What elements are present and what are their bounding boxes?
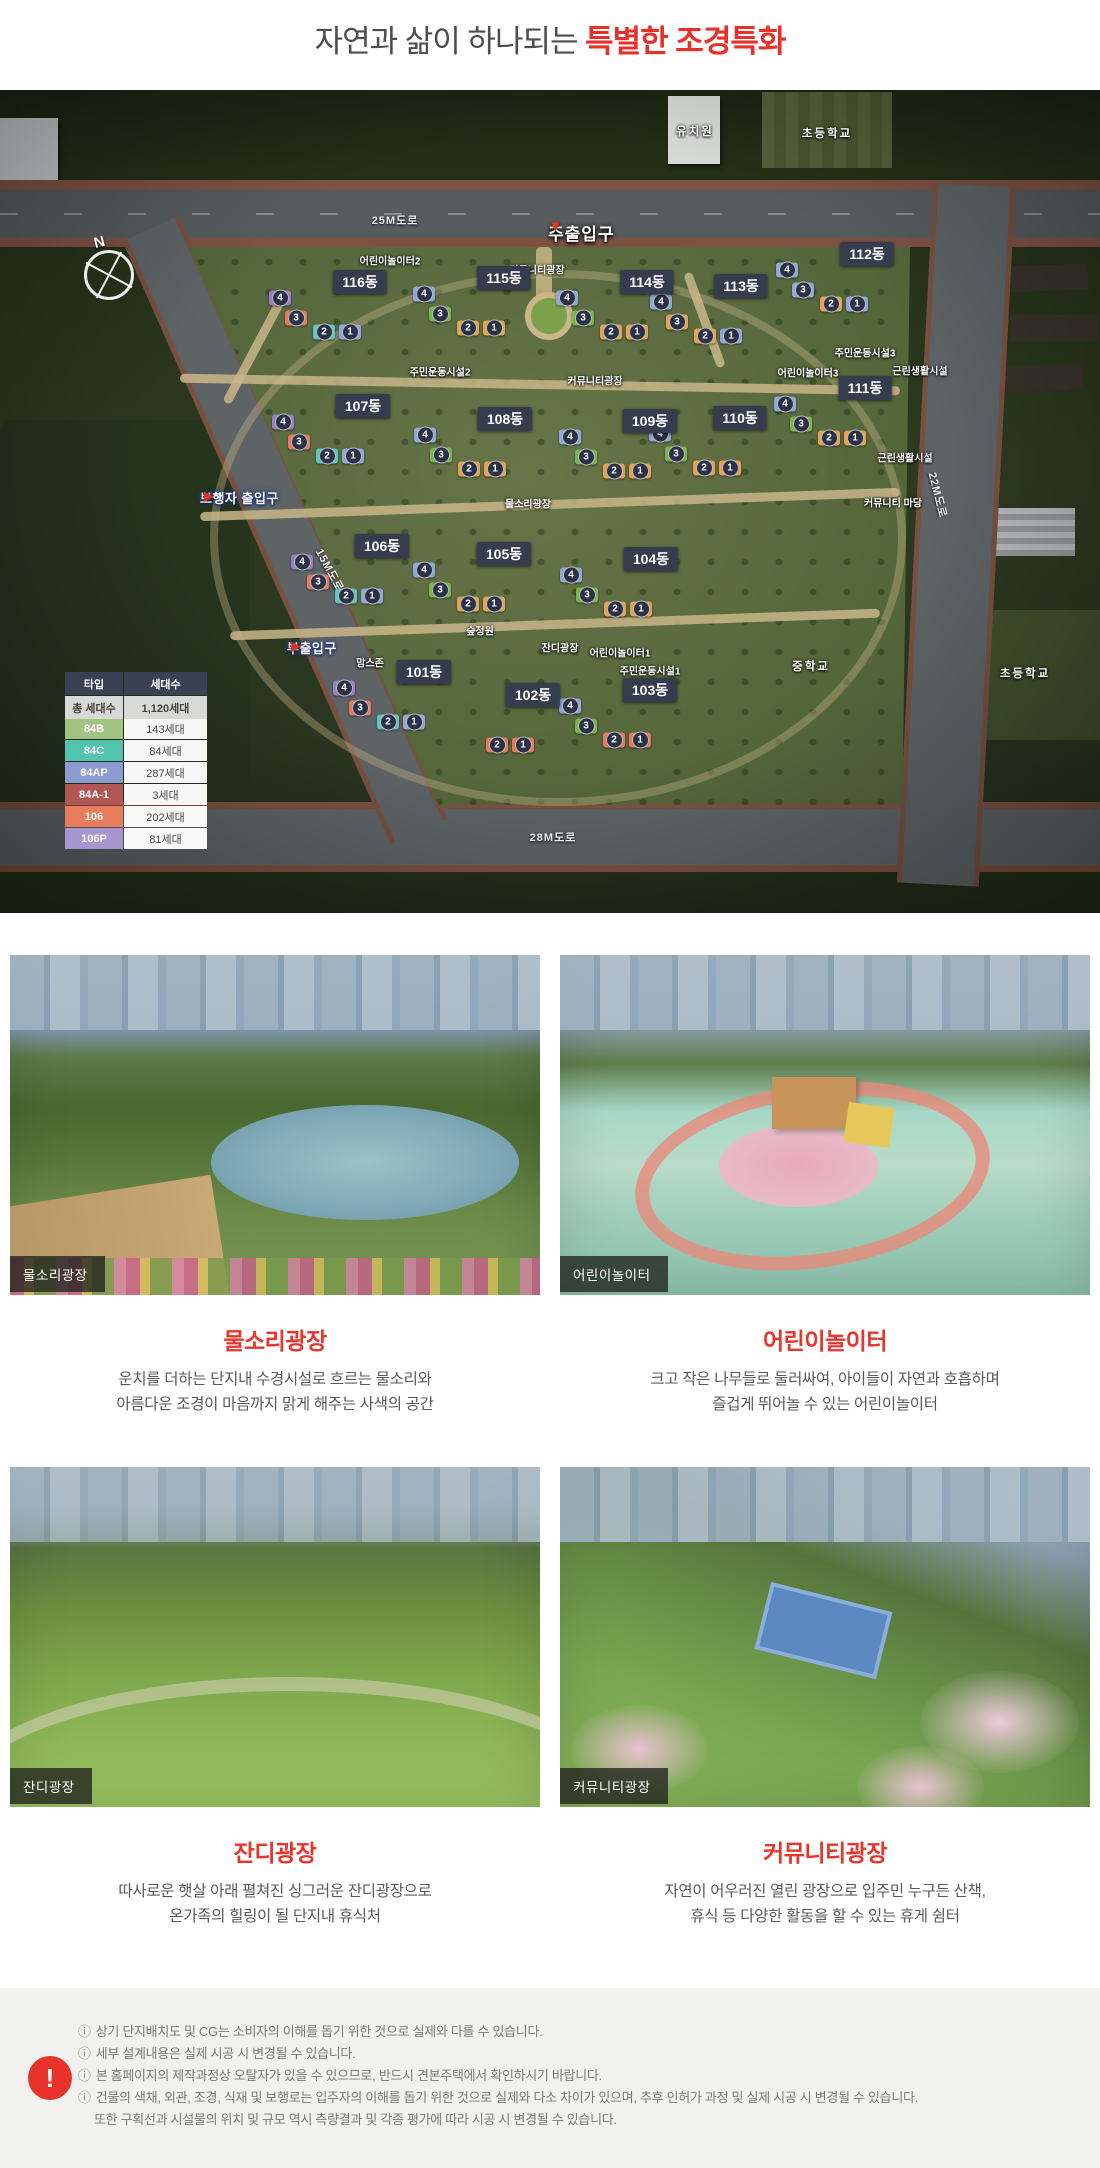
facility-label: 맘스존 [356,655,384,670]
unit-number: 1 [629,324,646,341]
facility-label: 초등학교 [802,125,852,141]
unit-number: 4 [416,562,433,579]
unit-marker: 2 [377,715,399,730]
unit-number: 2 [460,320,477,337]
unit-number: 2 [606,732,623,749]
facility-label: 어린이놀이터2 [360,253,421,268]
unit-number: 1 [345,448,362,465]
unit-marker: 3 [575,450,597,465]
facility-label: 근린생활시설 [877,450,932,465]
unit-marker: 4 [776,263,798,278]
building-badge: 115동 [477,266,530,290]
unit-marker: 4 [333,681,355,696]
unit-marker: 2 [600,325,622,340]
legend-total-label: 총 세대수 [65,696,123,719]
facility-label: 어린이놀이터3 [778,365,839,380]
legend-row: 84C84세대 [65,740,207,761]
legend-count-cell: 81세대 [124,828,207,849]
unit-marker: 1 [512,738,534,753]
legend-count-cell: 143세대 [124,718,207,739]
info-bullet-icon: ⓘ [78,2046,91,2061]
legend-table: 타입 세대수 84A320세대84B143세대84C84세대84AP287세대8… [65,672,207,720]
section-description: 운치를 더하는 단지내 수경시설로 흐르는 물소리와 아름다운 조경이 마음까지… [10,1367,540,1417]
desc-line-1: 크고 작은 나무들로 둘러싸여, 아이들이 자연과 호흡하며 [560,1367,1090,1392]
water-plaza-photo: 물소리광장 [10,955,540,1295]
facility-label: 주민운동시설3 [835,345,896,360]
unit-marker: 2 [603,733,625,748]
unit-marker: 3 [666,315,688,330]
unit-marker: 4 [272,415,294,430]
unit-number: 1 [487,461,504,478]
unit-number: 4 [562,429,579,446]
unit-number: 3 [288,310,305,327]
unit-number: 3 [795,282,812,299]
unit-number: 4 [336,680,353,697]
unit-marker: 4 [774,397,796,412]
road-label: 28M도로 [530,829,577,845]
unit-marker: 2 [818,431,840,446]
neighbor-building [1010,315,1098,341]
unit-number: 4 [294,554,311,571]
facility-label: 주민운동시설2 [410,364,471,379]
unit-marker: 1 [361,589,383,604]
desc-line-2: 휴식 등 다양한 활동을 할 수 있는 휴게 쉼터 [560,1904,1090,1929]
unit-number: 4 [777,396,794,413]
neighbor-building [1000,263,1089,292]
unit-marker: 3 [285,311,307,326]
unit-marker: 3 [576,588,598,603]
unit-number: 4 [275,414,292,431]
disclaimer-text: 또한 구획선과 시설물의 위치 및 규모 역시 측량결과 및 각종 평가에 따라… [94,2112,617,2127]
unit-marker: 3 [792,283,814,298]
playground-photo: 어린이놀이터 [560,955,1090,1295]
section-title: 물소리광장 [10,1295,540,1356]
unit-marker: 2 [313,325,335,340]
unit-number: 2 [696,460,713,477]
desc-line-1: 자연이 어우러진 열린 광장으로 입주민 누구든 산책, [560,1879,1090,1904]
unit-marker: 3 [429,307,451,322]
unit-number: 4 [653,294,670,311]
unit-marker: 1 [720,329,742,344]
unit-marker: 1 [844,431,866,446]
building-badge: 101동 [397,660,451,684]
facility-label: 어린이놀이터1 [590,645,651,660]
unit-marker: 4 [559,699,581,714]
unit-number: 2 [461,461,478,478]
unit-marker: 3 [575,719,597,734]
legend-total-count: 1,120세대 [124,696,207,719]
unit-marker: 4 [291,555,313,570]
photo-badge: 물소리광장 [10,1256,105,1292]
unit-number: 1 [364,588,381,605]
facility-label: 유치원 [676,123,714,139]
unit-marker: 4 [650,295,672,310]
desc-line-1: 운치를 더하는 단지내 수경시설로 흐르는 물소리와 [10,1367,540,1392]
unit-marker: 1 [629,464,651,479]
building-badge: 111동 [839,376,892,400]
disclaimer-text: 세부 설계내용은 실제 시공 시 변경될 수 있습니다. [96,2046,356,2061]
unit-number: 4 [563,567,580,584]
facility-label: 잔디광장 [542,640,579,655]
desc-line-2: 즐겁게 뛰어놀 수 있는 어린이놀이터 [560,1392,1090,1417]
unit-number: 1 [723,328,740,345]
legend-type-cell: 106 [65,806,123,827]
disclaimer-line: ⓘ상기 단지배치도 및 CG는 소비자의 이해를 돕기 위한 것으로 실제와 다… [78,2021,918,2043]
buildings-skyline [560,955,1090,1030]
unit-number: 4 [417,427,434,444]
section-title: 커뮤니티광장 [560,1807,1090,1868]
legend-count-cell: 287세대 [124,762,207,783]
legend-header-count: 세대수 [124,672,207,695]
facility-label: 커뮤니티 마당 [864,495,922,510]
unit-number: 2 [603,324,620,341]
disclaimer-text: 건물의 색채, 외관, 조경, 식재 및 보행로는 입주자의 이해를 돕기 위한… [96,2090,918,2105]
unit-marker: 1 [483,321,505,336]
section-water-plaza: 물소리광장 물소리광장 운치를 더하는 단지내 수경시설로 흐르는 물소리와 아… [10,955,540,1467]
facility-label: 근린생활시설 [892,363,947,378]
unit-marker: 1 [629,733,651,748]
unit-number: 1 [406,714,423,731]
unit-marker: 2 [486,738,508,753]
unit-number: 3 [578,718,595,735]
unit-number: 3 [433,447,450,464]
unit-number: 4 [416,286,433,303]
facility-label: 초등학교 [1000,665,1050,681]
unit-marker: 2 [820,297,842,312]
disclaimer-notes: ⓘ상기 단지배치도 및 CG는 소비자의 이해를 돕기 위한 것으로 실제와 다… [78,2021,918,2131]
section-playground: 어린이놀이터 어린이놀이터 크고 작은 나무들로 둘러싸여, 아이들이 자연과 … [560,955,1090,1467]
unit-marker: 3 [349,701,371,716]
unit-number: 2 [460,596,477,613]
unit-marker: 4 [413,287,435,302]
unit-marker: 1 [483,597,505,612]
section-community-plaza: 커뮤니티광장 커뮤니티광장 자연이 어우러진 열린 광장으로 입주민 누구든 산… [560,1467,1090,1988]
unit-marker: 4 [413,563,435,578]
unit-marker: 2 [457,597,479,612]
unit-marker: 4 [556,291,578,306]
unit-marker: 3 [429,583,451,598]
unit-number: 1 [633,601,650,618]
section-description: 크고 작은 나무들로 둘러싸여, 아이들이 자연과 호흡하며 즐겁게 뛰어놀 수… [560,1367,1090,1417]
unit-number: 1 [486,596,503,613]
photo-badge: 어린이놀이터 [560,1256,668,1292]
unit-marker: 2 [694,329,716,344]
unit-number: 2 [489,737,506,754]
unit-number: 1 [515,737,532,754]
unit-number: 2 [338,588,355,605]
photo-badge: 잔디광장 [10,1768,92,1804]
info-bullet-icon: ⓘ [78,2024,91,2039]
neighbor-building [995,363,1084,392]
building-badge: 103동 [623,678,677,702]
disclaimer-line: ⓘ본 홈페이지의 제작과정상 오탈자가 있을 수 있으므로, 반드시 견본주택에… [78,2065,918,2087]
unit-number: 3 [578,449,595,466]
unit-number: 1 [849,296,866,313]
unit-number: 1 [486,320,503,337]
photo-row-1: 물소리광장 물소리광장 운치를 더하는 단지내 수경시설로 흐르는 물소리와 아… [0,955,1100,1467]
disclaimer-text: 상기 단지배치도 및 CG는 소비자의 이해를 돕기 위한 것으로 실제와 다를… [96,2024,543,2039]
unit-marker: 1 [342,449,364,464]
unit-marker: 4 [269,291,291,306]
unit-marker: 1 [846,297,868,312]
disclaimer-line: ⓘ세부 설계내용은 실제 시공 시 변경될 수 있습니다. [78,2043,918,2065]
unit-number: 3 [310,574,327,591]
unit-marker: 1 [484,462,506,477]
buildings-skyline [10,955,540,1030]
lawn-plaza-caption: 잔디광장 따사로운 햇살 아래 펼쳐진 싱그러운 잔디광장으로 온가족의 힐링이… [10,1807,540,1988]
buildings-skyline [560,1467,1090,1542]
legend-type-cell: 84B [65,718,123,739]
unit-marker: 2 [316,449,338,464]
unit-number: 2 [607,601,624,618]
unit-marker: 2 [603,464,625,479]
building-badge: 105동 [477,542,531,566]
unit-marker: 1 [403,715,425,730]
page-title-normal: 자연과 삶이 하나되는 [315,24,586,59]
page: 자연과 삶이 하나되는 특별한 조경특화 [0,0,1100,2168]
desc-line-2: 온가족의 힐링이 될 단지내 휴식처 [10,1904,540,1929]
unit-marker: 2 [335,589,357,604]
entrance-arrow-icon: ▼ [548,220,563,234]
building-badge: 108동 [478,407,532,431]
building-badge: 109동 [623,409,677,433]
entrance-arrow-icon: ▶ [204,488,214,504]
playground-caption: 어린이놀이터 크고 작은 나무들로 둘러싸여, 아이들이 자연과 호흡하며 즐겁… [560,1295,1090,1467]
desc-line-1: 따사로운 햇살 아래 펼쳐진 싱그러운 잔디광장으로 [10,1879,540,1904]
unit-number: 1 [847,430,864,447]
disclaimer-line: 또한 구획선과 시설물의 위치 및 규모 역시 측량결과 및 각종 평가에 따라… [78,2109,918,2131]
info-bullet-icon: ⓘ [78,2090,91,2105]
unit-number: 1 [342,324,359,341]
warning-icon: ! [28,2056,72,2100]
entrance-arrow-icon: ▶ [291,638,301,654]
page-title-accent: 특별한 조경특화 [585,24,785,59]
unit-marker: 4 [559,430,581,445]
unit-number: 2 [823,296,840,313]
section-description: 자연이 어우러진 열린 광장으로 입주민 누구든 산책, 휴식 등 다양한 활동… [560,1879,1090,1929]
building-badge: 102동 [506,683,560,707]
unit-number: 3 [793,416,810,433]
facility-label: 물소리광장 [505,496,551,511]
building-badge: 114동 [620,270,673,294]
unit-number: 3 [291,434,308,451]
legend-type-cell: 84C [65,740,123,761]
building-badge: 110동 [713,406,766,430]
building-badge: 113동 [714,274,767,298]
legend-row: 106202세대 [65,806,207,827]
unit-number: 4 [272,290,289,307]
facility-label: 중학교 [792,658,830,674]
unit-marker: 1 [339,325,361,340]
legend-row: 84A-13세대 [65,784,207,805]
section-title: 잔디광장 [10,1807,540,1868]
legend-row: 84AP287세대 [65,762,207,783]
legend-header-type: 타입 [65,672,123,695]
unit-number: 3 [432,582,449,599]
buildings-skyline [10,1467,540,1542]
unit-number: 2 [316,324,333,341]
building-badge: 106동 [355,534,409,558]
unit-number: 1 [632,732,649,749]
unit-marker: 2 [604,602,626,617]
legend-count-cell: 3세대 [124,784,207,805]
section-lawn-plaza: 잔디광장 잔디광장 따사로운 햇살 아래 펼쳐진 싱그러운 잔디광장으로 온가족… [10,1467,540,1988]
photo-row-2: 잔디광장 잔디광장 따사로운 햇살 아래 펼쳐진 싱그러운 잔디광장으로 온가족… [0,1467,1100,1988]
header: 자연과 삶이 하나되는 특별한 조경특화 [0,0,1100,90]
section-description: 따사로운 햇살 아래 펼쳐진 싱그러운 잔디광장으로 온가족의 힐링이 될 단지… [10,1879,540,1929]
community-plaza-photo: 커뮤니티광장 [560,1467,1090,1807]
unit-marker: 3 [572,311,594,326]
unit-number: 4 [559,290,576,307]
site-plan: N 25M도로28M도로15M도로22M도로 어린이놀이터2커뮤니티광장주민운동… [0,90,1100,913]
legend-row: 84B143세대 [65,718,207,739]
road-label: 25M도로 [372,212,419,228]
info-bullet-icon: ⓘ [78,2068,91,2083]
unit-number: 3 [669,314,686,331]
unit-marker: 3 [307,575,329,590]
unit-number: 2 [821,430,838,447]
unit-marker: 3 [430,448,452,463]
unit-number: 4 [779,262,796,279]
section-title: 어린이놀이터 [560,1295,1090,1356]
unit-marker: 4 [414,428,436,443]
building-badge: 112동 [840,242,893,266]
legend-header-row: 타입 세대수 [65,672,207,695]
unit-number: 1 [722,460,739,477]
pond [211,1105,518,1221]
unit-number: 2 [380,714,397,731]
legend-type-cell: 84AP [65,762,123,783]
unit-marker: 2 [457,321,479,336]
unit-marker: 2 [693,461,715,476]
unit-number: 3 [579,587,596,604]
unit-number: 2 [606,463,623,480]
play-equipment [844,1102,895,1148]
legend-row: 106P81세대 [65,828,207,849]
legend-type-cell: 106P [65,828,123,849]
unit-number: 2 [319,448,336,465]
footer-disclaimer: ! ⓘ상기 단지배치도 및 CG는 소비자의 이해를 돕기 위한 것으로 실제와… [0,1988,1100,2168]
water-plaza-caption: 물소리광장 운치를 더하는 단지내 수경시설로 흐르는 물소리와 아름다운 조경… [10,1295,540,1467]
unit-number: 1 [632,463,649,480]
facility-label: 숲정원 [466,623,494,638]
walking-path [210,270,906,806]
unit-marker: 3 [665,447,687,462]
unit-number: 4 [562,698,579,715]
unit-marker: 2 [458,462,480,477]
building-badge: 116동 [333,270,386,294]
compass-circle [84,250,134,300]
community-plaza-caption: 커뮤니티광장 자연이 어우러진 열린 광장으로 입주민 누구든 산책, 휴식 등… [560,1807,1090,1988]
spacer [0,913,1100,955]
desc-line-2: 아름다운 조경이 마음까지 맑게 해주는 사색의 공간 [10,1392,540,1417]
unit-number: 3 [432,306,449,323]
north-compass-icon: N [82,238,134,296]
legend-count-cell: 202세대 [124,806,207,827]
legend-type-cell: 84A-1 [65,784,123,805]
facility-label: 주민운동시설1 [620,663,681,678]
unit-marker: 1 [630,602,652,617]
unit-marker: 3 [790,417,812,432]
legend-count-cell: 84세대 [124,740,207,761]
unit-number: 3 [575,310,592,327]
unit-number: 3 [352,700,369,717]
unit-marker: 3 [288,435,310,450]
unit-marker: 1 [626,325,648,340]
legend-total-row: 총 세대수 1,120세대 [65,696,207,719]
facility-label: 커뮤니티광장 [567,373,622,388]
building-badge: 107동 [336,394,390,418]
unit-marker: 4 [560,568,582,583]
play-equipment [772,1077,856,1129]
page-title: 자연과 삶이 하나되는 특별한 조경특화 [0,0,1100,61]
photo-badge: 커뮤니티광장 [560,1768,668,1804]
unit-number: 3 [668,446,685,463]
disclaimer-line: ⓘ건물의 색채, 외관, 조경, 식재 및 보행로는 입주자의 이해를 돕기 위… [78,2087,918,2109]
sports-court [755,1582,893,1679]
disclaimer-text: 본 홈페이지의 제작과정상 오탈자가 있을 수 있으므로, 반드시 견본주택에서… [96,2068,602,2083]
unit-number: 2 [697,328,714,345]
building-badge: 104동 [624,547,678,571]
unit-marker: 1 [719,461,741,476]
lawn-plaza-photo: 잔디광장 [10,1467,540,1807]
